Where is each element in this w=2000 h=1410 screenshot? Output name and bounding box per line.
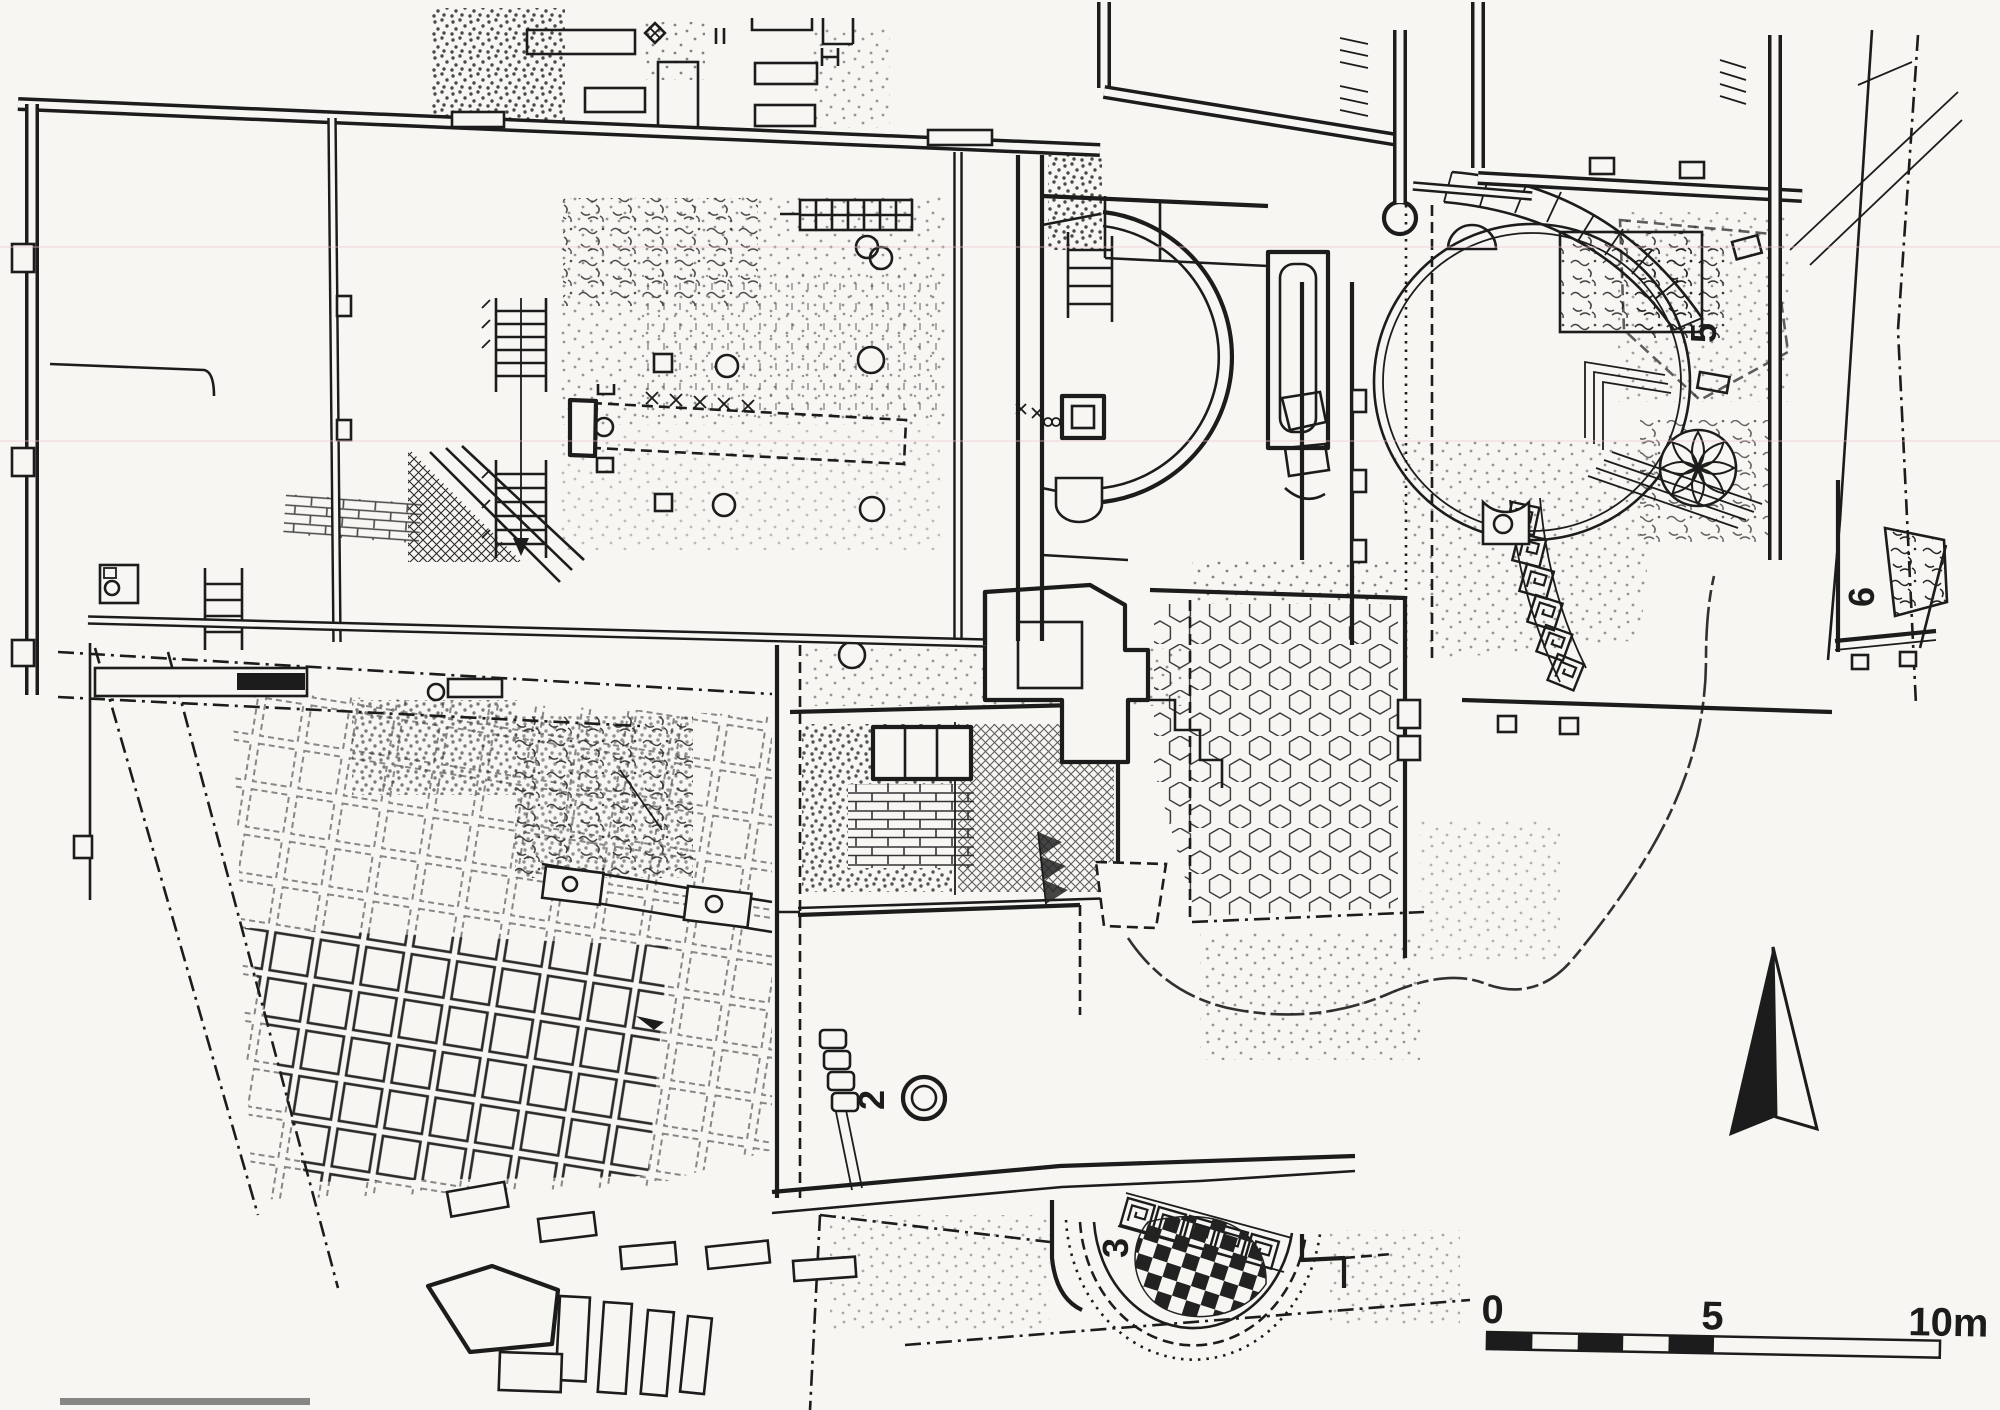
area-label-2: 2 xyxy=(851,1090,892,1110)
rubble-block xyxy=(1885,528,1947,616)
area-label-3: 3 xyxy=(1095,1238,1136,1258)
exedra-outer-arc xyxy=(1103,212,1232,502)
room6 xyxy=(1835,480,1947,669)
north-arrow-open-half xyxy=(1773,947,1817,1129)
scanned-plan-page: 0 5 10m 2 3 5 6 xyxy=(0,0,2000,1410)
basin-trapezoid xyxy=(1096,862,1166,928)
east-wall xyxy=(1828,30,1872,660)
slab-pavement xyxy=(245,928,668,1182)
column-circle xyxy=(1384,202,1416,234)
south-scatter xyxy=(60,1182,856,1405)
scale-tick-5: 5 xyxy=(1701,1294,1724,1338)
square-in-square-feature xyxy=(1016,396,1104,438)
sloped-path-lines xyxy=(1790,62,1962,265)
well-outer-circle xyxy=(903,1077,945,1119)
scan-smudge xyxy=(60,1398,310,1405)
area-label-5: 5 xyxy=(1683,323,1724,343)
area-label-6: 6 xyxy=(1841,587,1882,607)
staircase xyxy=(482,298,546,558)
scale-tick-0: 0 xyxy=(1481,1288,1504,1332)
hatch-marks xyxy=(1720,60,1746,104)
site-plan-svg: 0 5 10m 2 3 5 6 xyxy=(0,0,2000,1410)
scale-tick-10m: 10m xyxy=(1908,1300,1989,1346)
boundary-dashdot-line xyxy=(95,648,258,1215)
room2-features xyxy=(798,905,1080,1190)
half-round-basin xyxy=(1056,478,1102,522)
pool xyxy=(1268,252,1328,448)
steps xyxy=(205,568,242,650)
north-arrow-filled-half xyxy=(1729,947,1776,1136)
scale-bar: 0 5 10m xyxy=(1481,1288,1989,1359)
north-arrow xyxy=(1729,947,1817,1136)
